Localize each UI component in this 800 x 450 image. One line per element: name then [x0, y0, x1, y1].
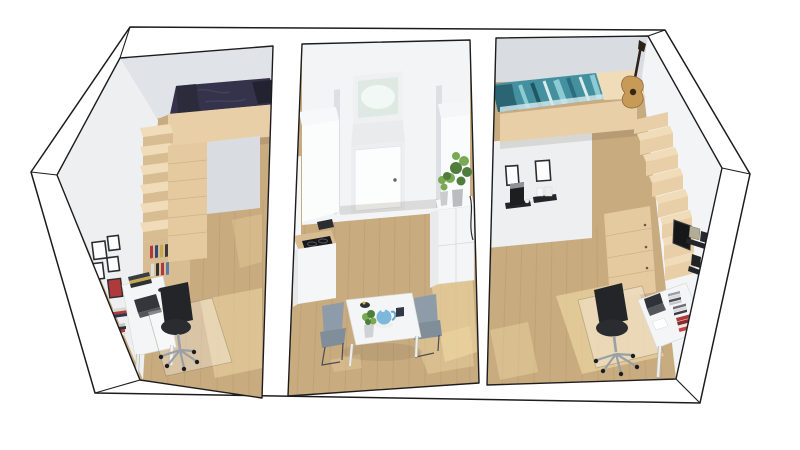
paper-pad [545, 187, 552, 196]
chair-seat [161, 319, 191, 335]
kitchen-dining-room [288, 40, 479, 396]
door-handle [393, 178, 396, 181]
drawer-cabinet-under-loft [168, 142, 207, 262]
wall-under-loft-left [207, 136, 260, 214]
apartment-3d-floorplan: Apartment 3D Floor Plan - Cutaway Render [0, 0, 800, 450]
red-poster-frame [108, 278, 123, 297]
paper-pad [537, 188, 543, 196]
mug [396, 307, 404, 317]
cup [530, 198, 534, 202]
counter-front [298, 243, 336, 304]
glass-vase [364, 324, 374, 338]
floorplan-stage: Apartment 3D Floor Plan - Cutaway Render [0, 0, 800, 450]
sideboard-side [430, 210, 438, 288]
kitchen-tall-cabinet-front [302, 120, 339, 222]
closet-top-right [438, 101, 470, 118]
entry-door [355, 146, 401, 211]
transom-glow [361, 85, 395, 109]
plant-pot [452, 189, 463, 207]
table-shadow [342, 343, 422, 361]
fruit [363, 302, 366, 305]
cup [525, 199, 529, 203]
plant-pot [440, 191, 448, 206]
duvet-fold [176, 84, 200, 114]
soundhole [630, 89, 636, 95]
teapot-lid [381, 308, 385, 312]
chair-seat [596, 320, 628, 337]
